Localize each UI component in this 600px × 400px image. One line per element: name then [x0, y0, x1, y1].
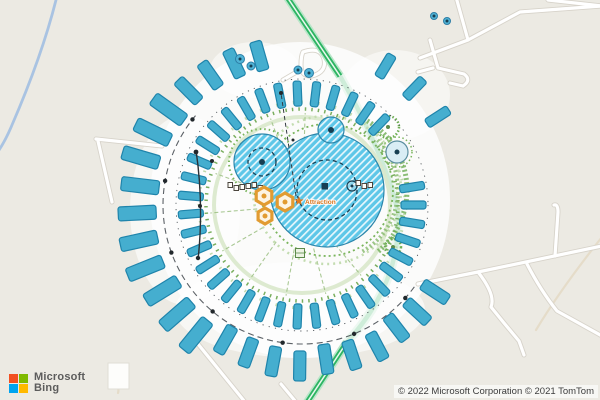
bing-map-canvas[interactable]: Attraction Microsoft Bing © 2022 Microso…: [0, 0, 600, 400]
river: [0, 0, 57, 153]
logo-square-red: [9, 374, 18, 383]
logo-square-green: [19, 374, 28, 383]
poi-label[interactable]: Attraction: [305, 199, 336, 206]
map-attribution: © 2022 Microsoft Corporation © 2021 TomT…: [394, 385, 598, 398]
map-render-layer: Attraction: [0, 0, 600, 400]
bing-text: Bing: [34, 383, 85, 395]
logo-square-blue: [9, 384, 18, 393]
bing-logo[interactable]: Microsoft Bing: [9, 372, 85, 395]
logo-square-yellow: [19, 384, 28, 393]
microsoft-logo-icon: [9, 374, 28, 393]
bing-wordmark: Microsoft Bing: [34, 372, 85, 395]
